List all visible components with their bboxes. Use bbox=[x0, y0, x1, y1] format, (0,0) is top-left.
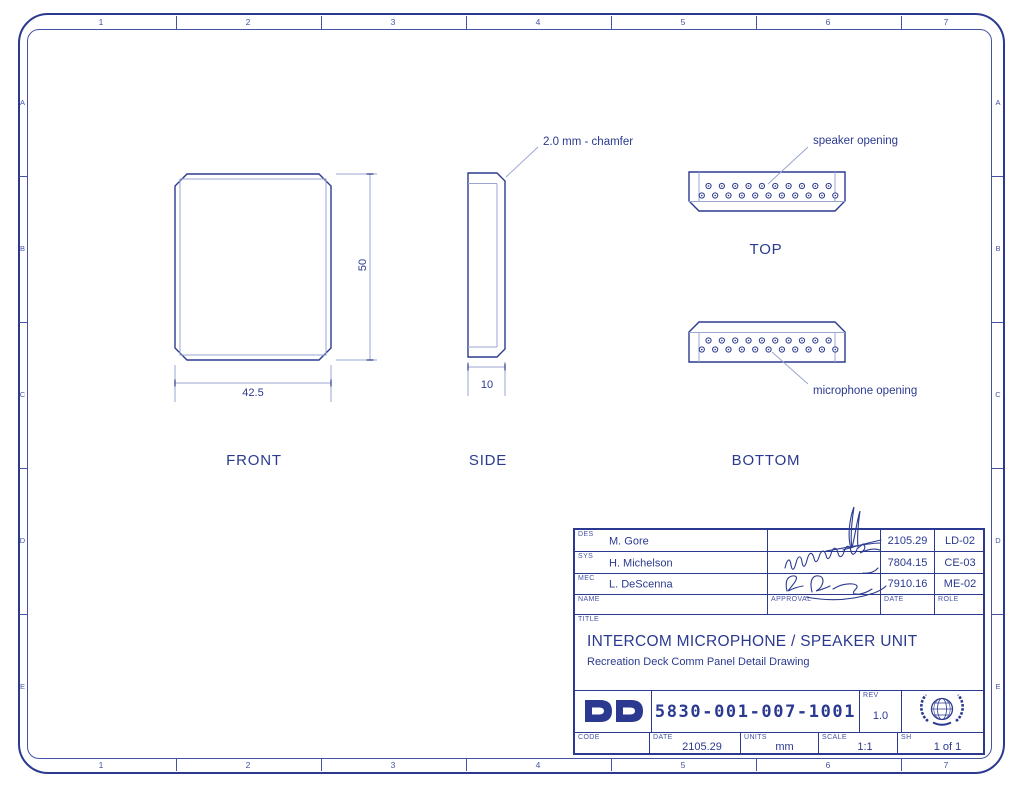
role-code-label: SYS bbox=[578, 553, 593, 560]
zone-row-label: C bbox=[993, 390, 1003, 399]
role-code-label: DES bbox=[578, 531, 594, 538]
zone-row-label: E bbox=[993, 682, 1003, 691]
approval-header-cell: APPROVAL bbox=[768, 595, 881, 615]
zone-tick bbox=[466, 16, 467, 29]
zone-column-label: 2 bbox=[237, 17, 261, 27]
units-cell: UNITS mm bbox=[741, 733, 819, 755]
role-header: ROLE bbox=[938, 596, 959, 603]
drawing-number-cell: 5830-001-007-1001 bbox=[652, 691, 860, 733]
front-view-label: FRONT bbox=[194, 452, 314, 469]
zone-tick bbox=[901, 759, 902, 771]
zone-column-label: 2 bbox=[237, 760, 261, 770]
date-cell: DATE 2105.29 bbox=[650, 733, 741, 755]
zone-column-label: 1 bbox=[90, 760, 114, 770]
approvals-date-cell: 2105.29 bbox=[881, 530, 935, 552]
zone-column-label: 6 bbox=[817, 17, 841, 27]
zone-column-label: 4 bbox=[527, 17, 551, 27]
zone-row-label: B bbox=[18, 244, 27, 253]
approval-date: 2105.29 bbox=[881, 530, 934, 551]
zone-tick bbox=[19, 468, 27, 469]
zone-row-label: A bbox=[993, 98, 1003, 107]
approvals-role-cell: CE-03 bbox=[935, 552, 985, 574]
zone-column-label: 3 bbox=[382, 760, 406, 770]
zone-tick bbox=[756, 16, 757, 29]
zone-tick bbox=[19, 614, 27, 615]
date-header-cell: DATE bbox=[881, 595, 935, 615]
approvals-role-cell: LD-02 bbox=[935, 530, 985, 552]
designer-name: H. Michelson bbox=[609, 557, 673, 569]
zone-column-label: 7 bbox=[935, 17, 959, 27]
zone-column-label: 4 bbox=[527, 760, 551, 770]
zone-column-label: 3 bbox=[382, 17, 406, 27]
title-area: TITLE INTERCOM MICROPHONE / SPEAKER UNIT… bbox=[575, 615, 985, 691]
zone-column-label: 5 bbox=[672, 17, 696, 27]
designer-name: M. Gore bbox=[609, 535, 649, 547]
zone-tick bbox=[992, 322, 1003, 323]
approval-date: 7804.15 bbox=[881, 552, 934, 573]
zone-tick bbox=[756, 759, 757, 771]
zone-tick bbox=[176, 16, 177, 29]
zone-tick bbox=[321, 16, 322, 29]
top-view-label: TOP bbox=[706, 241, 826, 258]
approval-header: APPROVAL bbox=[771, 596, 811, 603]
zone-tick bbox=[19, 176, 27, 177]
approvals-cell-mec: MEC L. DeScenna bbox=[575, 574, 768, 595]
approvals-date-cell: 7910.16 bbox=[881, 574, 935, 595]
approvals-date-cell: 7804.15 bbox=[881, 552, 935, 574]
zone-row-label: D bbox=[993, 536, 1003, 545]
zone-row-label: D bbox=[18, 536, 27, 545]
speaker-opening-note: speaker opening bbox=[813, 135, 898, 147]
zone-row-label: B bbox=[993, 244, 1003, 253]
drawing-title: INTERCOM MICROPHONE / SPEAKER UNIT bbox=[587, 633, 918, 651]
date-value: 2105.29 bbox=[650, 733, 740, 755]
zone-row-label: E bbox=[18, 682, 27, 691]
scale-cell: SCALE 1:1 bbox=[819, 733, 898, 755]
approvals-signature-cell bbox=[768, 530, 881, 552]
zone-tick bbox=[176, 759, 177, 771]
chamfer-note: 2.0 mm - chamfer bbox=[543, 136, 633, 148]
front-height-dimension: 50 bbox=[357, 245, 369, 285]
zone-tick bbox=[321, 759, 322, 771]
approval-role: ME-02 bbox=[935, 574, 985, 594]
zone-tick bbox=[466, 759, 467, 771]
emblem-cell bbox=[902, 691, 985, 733]
approval-date: 7910.16 bbox=[881, 574, 934, 594]
side-width-dimension: 10 bbox=[467, 379, 507, 391]
zone-row-label: A bbox=[18, 98, 27, 107]
role-code-label: MEC bbox=[578, 575, 595, 582]
sheet-value: 1 of 1 bbox=[898, 733, 985, 755]
zone-column-label: 7 bbox=[935, 760, 959, 770]
zone-tick bbox=[19, 322, 27, 323]
title-label: TITLE bbox=[578, 616, 599, 623]
zone-tick bbox=[901, 16, 902, 29]
front-width-dimension: 42.5 bbox=[223, 387, 283, 399]
logo-cell bbox=[575, 691, 652, 733]
zone-row-label: C bbox=[18, 390, 27, 399]
zone-column-label: 1 bbox=[90, 17, 114, 27]
bottom-view-label: BOTTOM bbox=[706, 452, 826, 469]
side-view-label: SIDE bbox=[428, 452, 548, 469]
title-block: DES M. Gore 2105.29 LD-02 SYS H. Michels… bbox=[573, 528, 985, 755]
drawing-number: 5830-001-007-1001 bbox=[652, 691, 859, 732]
rev-cell: REV 1.0 bbox=[860, 691, 902, 733]
zone-tick bbox=[611, 759, 612, 771]
zone-tick bbox=[992, 614, 1003, 615]
microphone-opening-note: microphone opening bbox=[813, 385, 917, 397]
drawing-subtitle: Recreation Deck Comm Panel Detail Drawin… bbox=[587, 656, 810, 668]
approvals-role-cell: ME-02 bbox=[935, 574, 985, 595]
name-header: NAME bbox=[578, 596, 600, 603]
designer-name: L. DeScenna bbox=[609, 578, 673, 590]
date-header: DATE bbox=[884, 596, 904, 603]
approval-role: LD-02 bbox=[935, 530, 985, 551]
approvals-signature-cell bbox=[768, 552, 881, 574]
code-label: CODE bbox=[578, 734, 600, 741]
zone-column-label: 5 bbox=[672, 760, 696, 770]
approval-role: CE-03 bbox=[935, 552, 985, 573]
approvals-cell-sys: SYS H. Michelson bbox=[575, 552, 768, 574]
zone-tick bbox=[992, 468, 1003, 469]
approvals-signature-cell bbox=[768, 574, 881, 595]
sheet-cell: SH 1 of 1 bbox=[898, 733, 985, 755]
role-header-cell: ROLE bbox=[935, 595, 985, 615]
zone-column-label: 6 bbox=[817, 760, 841, 770]
zone-tick bbox=[992, 176, 1003, 177]
rev-value: 1.0 bbox=[860, 691, 901, 732]
zone-tick bbox=[611, 16, 612, 29]
blueprint-sheet: 11223344556677AABBCCDDEE bbox=[0, 0, 1024, 791]
name-header-cell: NAME bbox=[575, 595, 768, 615]
scale-value: 1:1 bbox=[819, 733, 897, 755]
units-value: mm bbox=[741, 733, 818, 755]
code-cell: CODE bbox=[575, 733, 650, 755]
approvals-cell-des: DES M. Gore bbox=[575, 530, 768, 552]
